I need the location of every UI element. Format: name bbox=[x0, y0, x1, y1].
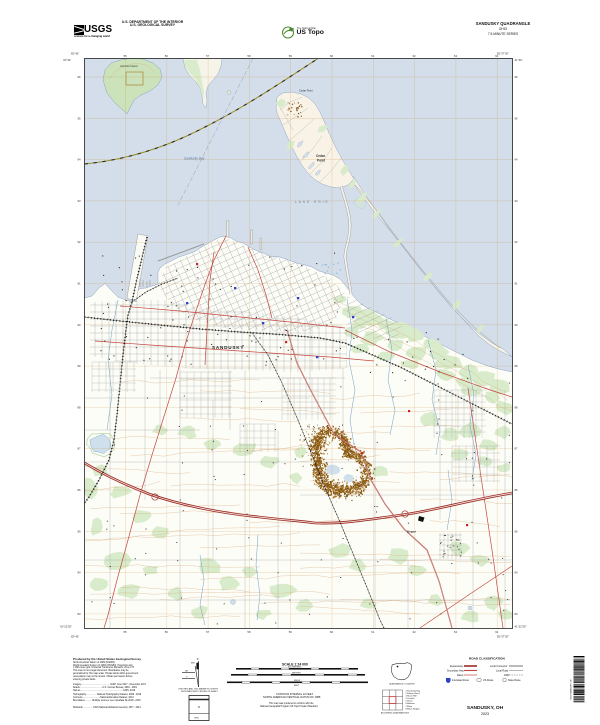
svg-text:Ramp: Ramp bbox=[457, 674, 464, 677]
svg-text:Cedar Point: Cedar Point bbox=[299, 89, 313, 93]
svg-text:84: 84 bbox=[515, 571, 519, 575]
svg-text:94: 94 bbox=[78, 158, 82, 162]
svg-text:58: 58 bbox=[247, 630, 251, 634]
svg-text:82°37'30": 82°37'30" bbox=[497, 52, 509, 56]
svg-text:61: 61 bbox=[371, 54, 375, 58]
svg-text:Cedar: Cedar bbox=[316, 154, 326, 158]
svg-text:85: 85 bbox=[78, 529, 82, 533]
svg-text:LAKE ERIE: LAKE ERIE bbox=[295, 200, 330, 204]
svg-text:82°45': 82°45' bbox=[71, 52, 79, 56]
svg-text:US Route: US Route bbox=[483, 679, 494, 682]
svg-text:National Geospatial Program US: National Geospatial Program US Topo Prod… bbox=[260, 705, 318, 708]
svg-text:94: 94 bbox=[515, 158, 519, 162]
svg-text:89: 89 bbox=[515, 364, 519, 368]
svg-text:60: 60 bbox=[330, 54, 334, 58]
svg-text:82°37'30": 82°37'30" bbox=[497, 635, 509, 639]
svg-text:7°: 7° bbox=[186, 677, 188, 679]
svg-text:56: 56 bbox=[165, 630, 169, 634]
svg-text:82°45': 82°45' bbox=[71, 635, 79, 639]
svg-text:95: 95 bbox=[78, 116, 82, 120]
svg-text:90: 90 bbox=[515, 323, 519, 327]
svg-text:GRID: GRID bbox=[194, 718, 200, 720]
svg-text:ROAD CLASSIFICATION: ROAD CLASSIFICATION bbox=[469, 657, 505, 661]
svg-text:DECLINATION AT CENTER OF SHEET: DECLINATION AT CENTER OF SHEET bbox=[181, 690, 219, 693]
svg-text:USGS SANDUSKY OH: USGS SANDUSKY OH bbox=[570, 679, 573, 700]
svg-text:ADJOINING QUADRANGLES: ADJOINING QUADRANGLES bbox=[381, 712, 409, 715]
svg-text:89: 89 bbox=[78, 364, 82, 368]
svg-text:85: 85 bbox=[515, 529, 519, 533]
svg-text:41°30': 41°30' bbox=[515, 58, 523, 62]
svg-text:Local Connector: Local Connector bbox=[490, 665, 508, 668]
svg-text:Local Road: Local Road bbox=[496, 669, 509, 672]
svg-text:61: 61 bbox=[371, 630, 375, 634]
svg-text:✶: ✶ bbox=[197, 657, 200, 661]
svg-text:62: 62 bbox=[413, 630, 417, 634]
svg-text:93: 93 bbox=[515, 199, 519, 203]
svg-text:88: 88 bbox=[515, 405, 519, 409]
svg-text:87: 87 bbox=[515, 447, 519, 451]
svg-text:41°30': 41°30' bbox=[63, 58, 71, 62]
svg-text:55: 55 bbox=[124, 54, 128, 58]
svg-text:86: 86 bbox=[78, 488, 82, 492]
svg-text:Bogart: Bogart bbox=[407, 530, 416, 534]
svg-text:State Route: State Route bbox=[508, 679, 521, 682]
svg-text:FEET: FEET bbox=[294, 685, 300, 687]
svg-text:57: 57 bbox=[206, 54, 210, 58]
svg-text:MN: MN bbox=[191, 663, 195, 665]
svg-text:MILES: MILES bbox=[294, 680, 301, 682]
svg-text:92: 92 bbox=[78, 240, 82, 244]
svg-text:83: 83 bbox=[78, 612, 82, 616]
svg-text:96: 96 bbox=[78, 75, 82, 79]
svg-text:8 Berlin Heights: 8 Berlin Heights bbox=[406, 707, 420, 710]
svg-text:96: 96 bbox=[515, 75, 519, 79]
svg-text:METERS: METERS bbox=[292, 672, 301, 674]
svg-text:Secondary Hwy: Secondary Hwy bbox=[447, 669, 465, 672]
svg-text:62: 62 bbox=[413, 54, 417, 58]
svg-text:UTM GRID AND 2023 MAGNETIC NOR: UTM GRID AND 2023 MAGNETIC NORTH bbox=[178, 687, 218, 690]
svg-text:91: 91 bbox=[78, 282, 82, 286]
svg-text:60: 60 bbox=[330, 630, 334, 634]
svg-text:Point: Point bbox=[317, 159, 326, 163]
svg-text:83: 83 bbox=[515, 612, 519, 616]
svg-text:87: 87 bbox=[78, 447, 82, 451]
svg-text:59: 59 bbox=[289, 630, 293, 634]
svg-text:NORTH AMERICAN VERTICAL DATUM: NORTH AMERICAN VERTICAL DATUM OF 1988 bbox=[263, 695, 321, 699]
svg-text:Sandusky Bay: Sandusky Bay bbox=[184, 157, 205, 161]
svg-text:84: 84 bbox=[78, 571, 82, 575]
svg-text:57: 57 bbox=[206, 630, 210, 634]
svg-text:59: 59 bbox=[289, 54, 293, 58]
svg-text:KILOMETERS: KILOMETERS bbox=[288, 666, 302, 668]
svg-text:Johnson Island: Johnson Island bbox=[120, 64, 138, 68]
svg-text:93: 93 bbox=[78, 199, 82, 203]
svg-text:63: 63 bbox=[454, 54, 458, 58]
svg-text:95: 95 bbox=[515, 116, 519, 120]
svg-text:This map was produced to confo: This map was produced to conform with th… bbox=[269, 702, 314, 705]
svg-text:41°22'30": 41°22'30" bbox=[60, 625, 72, 629]
svg-text:63: 63 bbox=[454, 630, 458, 634]
svg-text:4 Castalia: 4 Castalia bbox=[406, 697, 416, 700]
svg-text:56: 56 bbox=[165, 54, 169, 58]
svg-text:SANDUSKY: SANDUSKY bbox=[212, 345, 244, 350]
svg-text:91: 91 bbox=[515, 282, 519, 286]
svg-text:41°22'30": 41°22'30" bbox=[515, 625, 527, 629]
svg-text:Expressway: Expressway bbox=[450, 665, 464, 668]
svg-text:92: 92 bbox=[515, 240, 519, 244]
svg-text:55: 55 bbox=[124, 630, 128, 634]
svg-text:88: 88 bbox=[78, 405, 82, 409]
svg-text:58: 58 bbox=[247, 54, 251, 58]
svg-text:Interstate Route: Interstate Route bbox=[452, 679, 470, 682]
svg-text:QUADRANGLE LOCATION: QUADRANGLE LOCATION bbox=[389, 683, 415, 686]
svg-text:86: 86 bbox=[515, 488, 519, 492]
svg-text:4WD: 4WD bbox=[504, 674, 510, 677]
svg-text:90: 90 bbox=[78, 323, 82, 327]
